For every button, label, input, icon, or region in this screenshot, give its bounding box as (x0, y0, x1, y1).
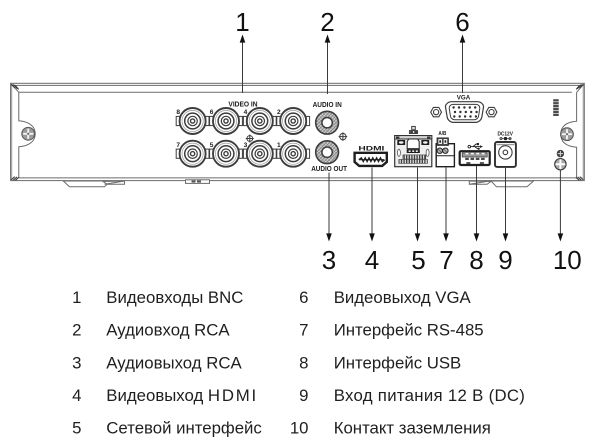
svg-text:7: 7 (176, 142, 180, 149)
svg-text:Видеовыход VGA: Видеовыход VGA (334, 288, 472, 307)
svg-text:6: 6 (210, 109, 214, 116)
svg-text:2: 2 (72, 320, 81, 339)
svg-text:VIDEO IN: VIDEO IN (228, 100, 257, 109)
svg-text:5: 5 (72, 418, 81, 437)
svg-text:5: 5 (411, 245, 425, 275)
svg-text:2: 2 (277, 109, 281, 116)
svg-text:AUDIO OUT: AUDIO OUT (311, 164, 347, 173)
svg-text:Контакт заземления: Контакт заземления (334, 418, 491, 437)
svg-text:2: 2 (320, 7, 334, 37)
svg-text:DC12V: DC12V (497, 131, 513, 137)
svg-text:4: 4 (365, 245, 379, 275)
svg-text:9: 9 (498, 245, 512, 275)
svg-text:3: 3 (322, 245, 336, 275)
svg-text:1: 1 (235, 7, 249, 37)
svg-text:Видеовходы BNC: Видеовходы BNC (106, 288, 243, 307)
svg-text:7: 7 (439, 245, 453, 275)
svg-text:6: 6 (455, 7, 469, 37)
svg-text:A/B: A/B (438, 131, 446, 137)
svg-text:1: 1 (277, 142, 281, 149)
svg-text:Видеовыход HDMI: Видеовыход HDMI (106, 386, 258, 405)
svg-text:10: 10 (553, 245, 582, 275)
svg-text:AUDIO IN: AUDIO IN (313, 100, 342, 109)
svg-text:7: 7 (299, 320, 308, 339)
svg-text:Аудиовход RCA: Аудиовход RCA (106, 320, 230, 339)
svg-text:3: 3 (72, 353, 81, 372)
svg-text:3: 3 (244, 142, 248, 149)
svg-text:8: 8 (299, 353, 308, 372)
svg-text:Вход питания 12 В (DC): Вход питания 12 В (DC) (334, 386, 526, 405)
svg-text:6: 6 (299, 288, 308, 307)
svg-text:VGA: VGA (457, 94, 471, 101)
svg-text:Сетевой интерфейс: Сетевой интерфейс (106, 418, 262, 437)
svg-text:Интерфейс RS-485: Интерфейс RS-485 (334, 320, 484, 339)
svg-text:9: 9 (299, 386, 308, 405)
svg-text:1: 1 (72, 288, 81, 307)
svg-text:8: 8 (176, 109, 180, 116)
svg-text:Интерфейс USB: Интерфейс USB (334, 353, 462, 372)
svg-text:4: 4 (72, 386, 81, 405)
svg-text:8: 8 (469, 245, 483, 275)
svg-text:10: 10 (290, 418, 309, 437)
svg-text:5: 5 (210, 142, 214, 149)
svg-text:4: 4 (244, 109, 248, 116)
svg-text:Аудиовыход RCA: Аудиовыход RCA (106, 353, 242, 372)
